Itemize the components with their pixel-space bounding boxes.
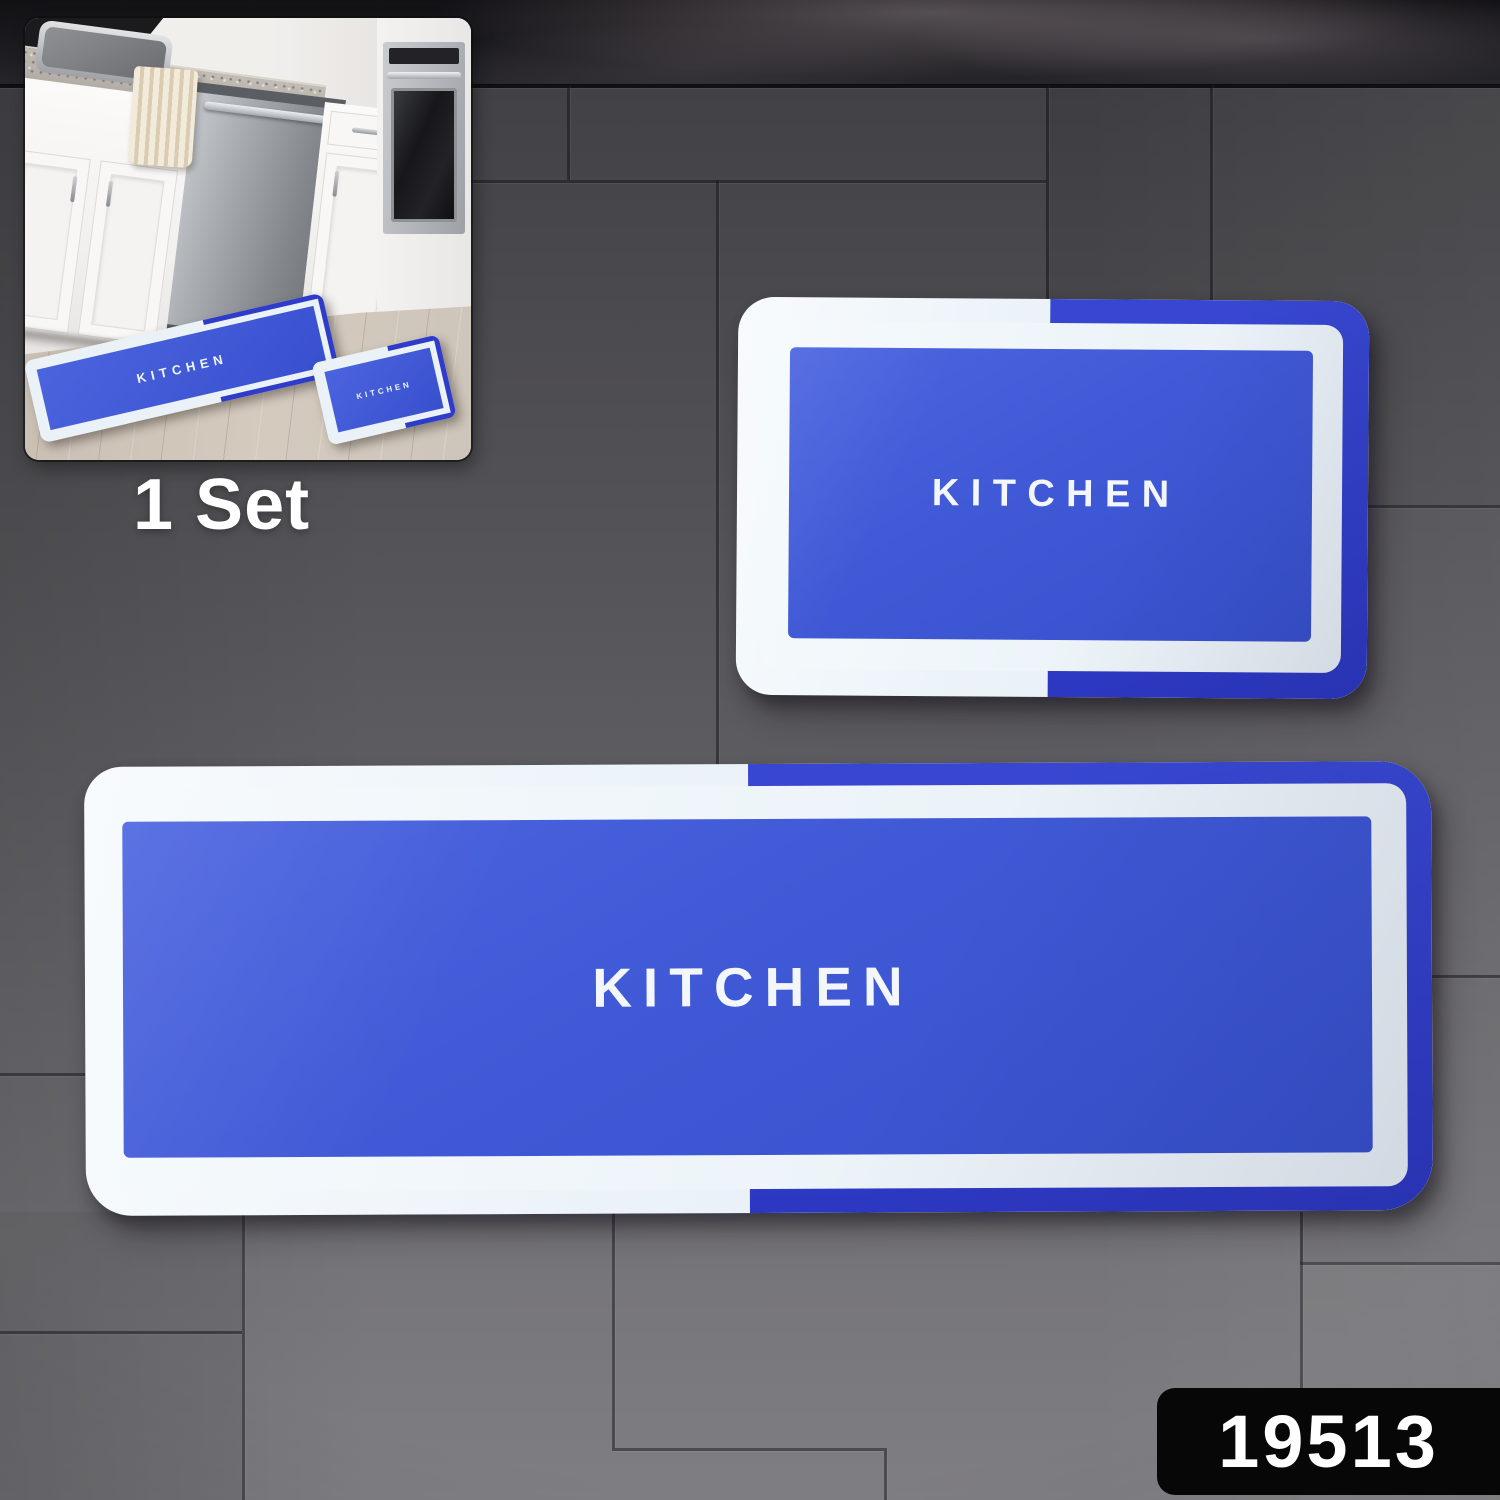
oven-cabinet-column xyxy=(377,18,471,330)
set-count-label: 1 Set xyxy=(133,468,310,544)
tile-grout-line xyxy=(612,1212,615,1448)
oven-handle xyxy=(387,72,461,79)
tile-grout-line xyxy=(0,1073,85,1076)
large-kitchen-mat: KITCHEN xyxy=(84,761,1433,1216)
striped-towel xyxy=(128,66,199,168)
tile-grout-line xyxy=(1210,85,1213,300)
oven-control-panel xyxy=(389,48,459,64)
kitchen-text: KITCHEN xyxy=(135,350,229,385)
tile-grout-line xyxy=(0,1331,242,1334)
tile-grout-line xyxy=(1046,85,1049,300)
tile-grout-line xyxy=(1432,975,1500,978)
tile-grout-line xyxy=(612,1448,884,1451)
tile-grout-line xyxy=(884,1448,887,1500)
mat-inner-panel: KITCHEN xyxy=(788,347,1313,642)
product-photo: KITCHEN KITCHEN 1 Set KITCHEN KITCHEN xyxy=(0,0,1500,1500)
mat-inner-panel: KITCHEN xyxy=(122,816,1372,1157)
cabinet-door-panel xyxy=(25,162,77,320)
tile-grout-line xyxy=(1368,505,1500,508)
oven-door-glass xyxy=(391,88,457,222)
cabinet-door xyxy=(78,160,178,345)
tile-grout-line xyxy=(1300,1262,1500,1265)
kitchen-text: KITCHEN xyxy=(932,472,1181,517)
tile-grout-line xyxy=(470,180,1046,183)
small-kitchen-mat: KITCHEN xyxy=(736,297,1370,699)
product-code-badge: 19513 xyxy=(1157,1388,1500,1495)
tile-grout-line xyxy=(242,1212,245,1500)
kitchen-text: KITCHEN xyxy=(355,379,412,400)
wall-oven xyxy=(383,42,465,234)
kitchen-text: KITCHEN xyxy=(592,954,914,1019)
inset-photo: KITCHEN KITCHEN xyxy=(25,18,471,460)
tile-grout-line xyxy=(567,85,570,180)
tile-grout-line xyxy=(1300,1212,1303,1388)
cabinet-door-panel xyxy=(91,174,164,332)
tile-grout-line xyxy=(716,180,719,765)
product-code-text: 19513 xyxy=(1218,1399,1439,1484)
